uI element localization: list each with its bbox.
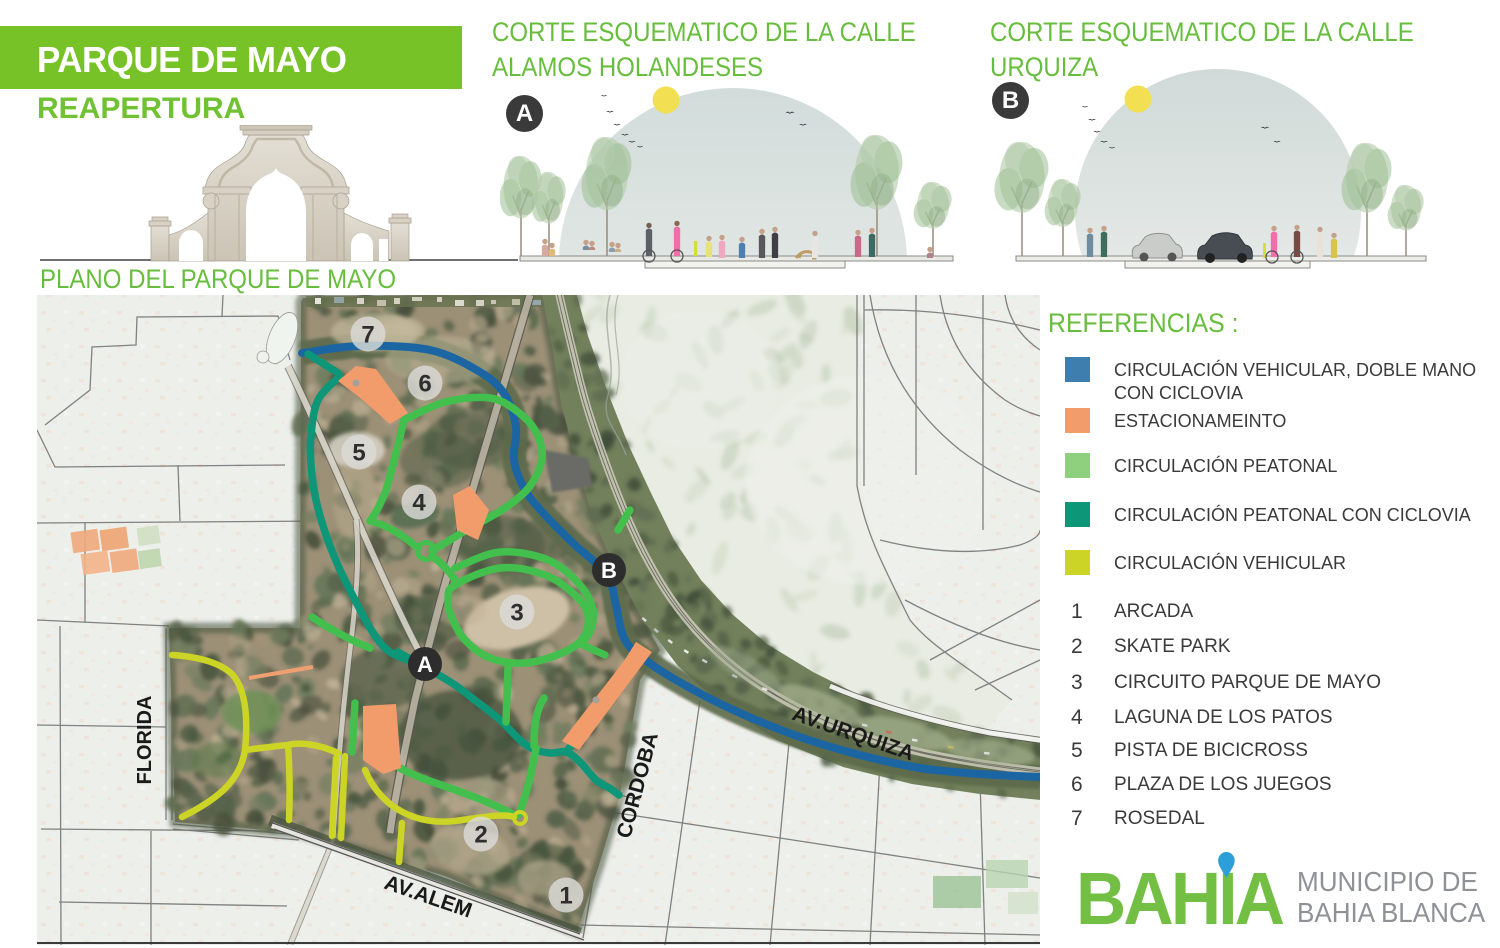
svg-text:1: 1 — [559, 883, 572, 910]
svg-text:6: 6 — [418, 371, 431, 398]
svg-text:A: A — [417, 652, 433, 677]
svg-text:7: 7 — [361, 322, 374, 349]
svg-text:FLORIDA: FLORIDA — [134, 696, 156, 785]
svg-text:2: 2 — [474, 822, 487, 849]
svg-text:5: 5 — [352, 440, 365, 467]
svg-text:B: B — [601, 558, 617, 583]
svg-text:4: 4 — [412, 490, 426, 517]
svg-text:3: 3 — [510, 600, 523, 627]
